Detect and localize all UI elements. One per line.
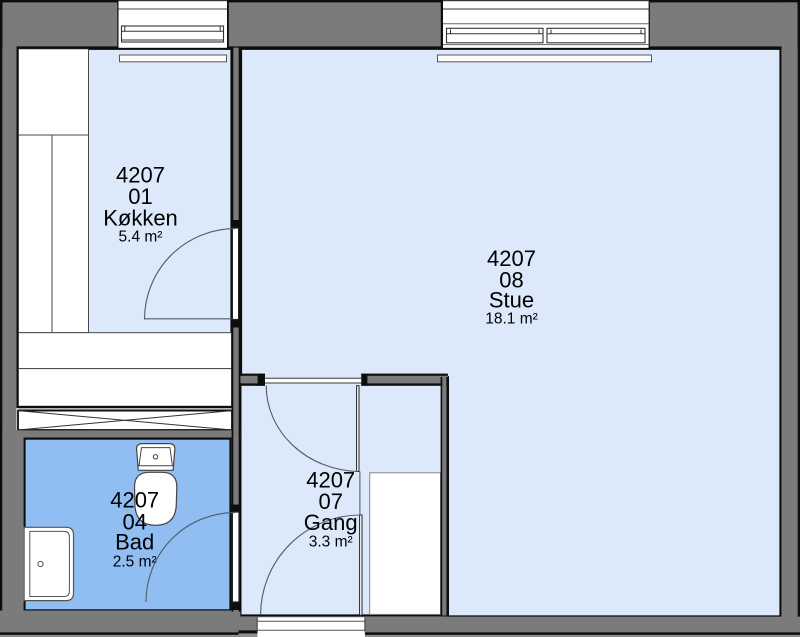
svg-text:3.3 m²: 3.3 m² xyxy=(309,533,353,550)
svg-text:Bad: Bad xyxy=(115,530,154,555)
svg-text:18.1 m²: 18.1 m² xyxy=(485,311,538,328)
svg-text:Stue: Stue xyxy=(489,288,534,313)
svg-text:5.4 m²: 5.4 m² xyxy=(119,228,163,245)
svg-text:Gang: Gang xyxy=(304,510,358,535)
svg-text:2.5 m²: 2.5 m² xyxy=(113,554,157,571)
svg-text:Køkken: Køkken xyxy=(103,205,178,230)
